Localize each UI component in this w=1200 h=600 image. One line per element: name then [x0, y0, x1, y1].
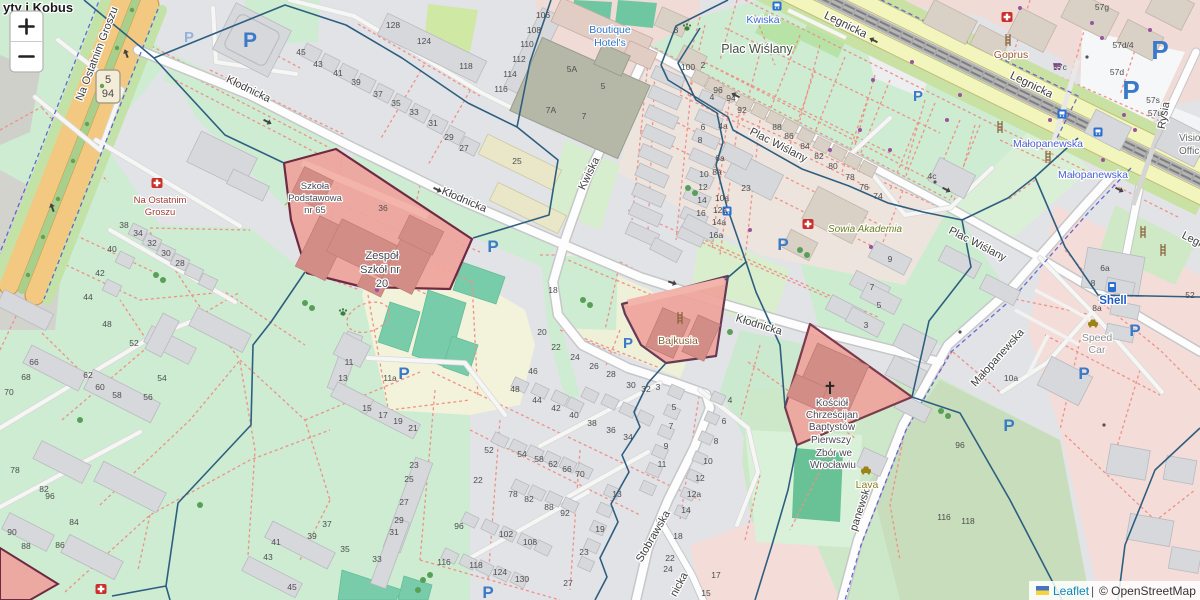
svg-text:Car: Car: [1089, 344, 1106, 356]
svg-text:9: 9: [888, 254, 893, 264]
svg-text:Szkoła: Szkoła: [301, 181, 330, 192]
svg-text:Speed: Speed: [1082, 332, 1113, 344]
svg-text:54: 54: [157, 373, 167, 383]
svg-text:118: 118: [469, 560, 483, 570]
svg-text:14a: 14a: [712, 217, 726, 227]
svg-text:130: 130: [515, 574, 529, 584]
svg-text:8: 8: [698, 135, 703, 145]
svg-text:39: 39: [351, 77, 361, 87]
svg-text:22: 22: [665, 553, 675, 563]
svg-text:48: 48: [510, 384, 520, 394]
svg-text:20: 20: [537, 327, 547, 337]
svg-text:7A: 7A: [546, 105, 557, 115]
svg-text:20: 20: [376, 278, 388, 290]
svg-text:88: 88: [544, 502, 554, 512]
svg-text:32: 32: [147, 238, 157, 248]
svg-text:106: 106: [536, 10, 550, 20]
svg-text:15: 15: [362, 403, 372, 413]
svg-text:Shell: Shell: [1099, 295, 1126, 307]
svg-text:90: 90: [7, 527, 17, 537]
svg-text:10: 10: [699, 169, 709, 179]
svg-text:P: P: [398, 364, 409, 383]
svg-text:62: 62: [83, 370, 93, 380]
svg-text:44: 44: [83, 292, 93, 302]
svg-text:Zespół: Zespół: [365, 250, 399, 262]
svg-text:31: 31: [389, 527, 399, 537]
svg-text:40: 40: [569, 410, 579, 420]
svg-text:114: 114: [503, 69, 517, 79]
svg-text:Sowia Akademia: Sowia Akademia: [828, 224, 903, 235]
svg-text:96: 96: [955, 440, 965, 450]
svg-text:16: 16: [696, 208, 706, 218]
svg-text:48: 48: [102, 319, 112, 329]
svg-text:80: 80: [828, 161, 838, 171]
svg-text:11a: 11a: [383, 373, 397, 383]
svg-text:P: P: [1151, 35, 1168, 65]
svg-text:45: 45: [296, 47, 306, 57]
svg-text:82: 82: [524, 494, 534, 504]
svg-text:42: 42: [95, 268, 105, 278]
svg-text:18: 18: [673, 531, 683, 541]
svg-text:2: 2: [701, 60, 706, 70]
svg-text:62: 62: [548, 459, 558, 469]
svg-text:116: 116: [937, 512, 951, 522]
svg-text:21: 21: [408, 423, 418, 433]
svg-text:6a: 6a: [1100, 263, 1110, 273]
svg-text:116: 116: [494, 84, 508, 94]
svg-text:76: 76: [859, 182, 869, 192]
svg-text:Małopanewska: Małopanewska: [1058, 169, 1128, 181]
svg-text:26: 26: [589, 361, 599, 371]
svg-text:P: P: [184, 29, 194, 46]
svg-text:86: 86: [784, 131, 794, 141]
svg-text:82: 82: [39, 484, 49, 494]
svg-text:42: 42: [551, 403, 561, 413]
svg-text:96: 96: [713, 85, 723, 95]
svg-text:100: 100: [681, 62, 695, 72]
svg-text:38: 38: [587, 418, 597, 428]
svg-text:6: 6: [701, 122, 706, 132]
svg-text:25: 25: [512, 156, 522, 166]
svg-text:8: 8: [714, 436, 719, 446]
svg-text:5: 5: [601, 81, 606, 91]
svg-text:13: 13: [338, 373, 348, 383]
svg-text:86: 86: [55, 540, 65, 550]
svg-text:70: 70: [575, 469, 585, 479]
svg-text:P: P: [1003, 416, 1014, 435]
svg-text:Plac Wiślany: Plac Wiślany: [721, 42, 793, 56]
svg-text:118: 118: [961, 516, 975, 526]
svg-text:66: 66: [562, 464, 572, 474]
svg-text:37: 37: [373, 89, 383, 99]
svg-text:34: 34: [133, 228, 143, 238]
svg-text:39: 39: [307, 531, 317, 541]
svg-text:30: 30: [161, 248, 171, 258]
svg-text:13: 13: [612, 489, 622, 499]
svg-text:18: 18: [548, 285, 558, 295]
svg-text:30: 30: [626, 380, 636, 390]
svg-text:57g: 57g: [1095, 2, 1109, 12]
svg-text:96: 96: [454, 521, 464, 531]
svg-text:92: 92: [737, 105, 747, 115]
svg-text:Chrześcijan: Chrześcijan: [806, 410, 858, 421]
svg-text:4: 4: [728, 395, 733, 405]
svg-text:|: |: [1091, 584, 1094, 598]
svg-text:78: 78: [10, 465, 20, 475]
svg-text:36: 36: [378, 203, 388, 213]
svg-text:57u: 57u: [1148, 108, 1162, 118]
svg-text:35: 35: [340, 544, 350, 554]
svg-text:4c: 4c: [928, 171, 938, 181]
svg-text:25: 25: [404, 474, 414, 484]
svg-text:23: 23: [579, 547, 589, 557]
svg-text:P: P: [487, 237, 498, 256]
svg-text:12a: 12a: [713, 205, 727, 215]
svg-text:52: 52: [1185, 290, 1195, 300]
svg-text:70: 70: [4, 387, 14, 397]
svg-text:41: 41: [271, 537, 281, 547]
svg-text:88: 88: [772, 122, 782, 132]
svg-text:© OpenStreetMap: © OpenStreetMap: [1099, 584, 1196, 598]
svg-text:15: 15: [701, 588, 711, 598]
svg-text:10a: 10a: [1004, 373, 1018, 383]
svg-text:33: 33: [372, 554, 382, 564]
svg-text:6: 6: [722, 416, 727, 426]
svg-text:44: 44: [532, 395, 542, 405]
svg-text:33: 33: [409, 107, 419, 117]
svg-text:12: 12: [698, 182, 708, 192]
svg-text:Zbór we: Zbór we: [816, 448, 853, 459]
svg-text:16a: 16a: [709, 230, 723, 240]
svg-text:P: P: [1122, 75, 1139, 105]
svg-text:✝: ✝: [823, 379, 837, 398]
svg-text:27: 27: [399, 497, 409, 507]
svg-text:28: 28: [606, 369, 616, 379]
svg-text:43: 43: [313, 59, 323, 69]
svg-text:108: 108: [523, 537, 537, 547]
svg-text:7: 7: [669, 421, 674, 431]
svg-text:34: 34: [623, 432, 633, 442]
svg-text:Kwiska: Kwiska: [746, 14, 779, 26]
svg-text:Vision: Vision: [1179, 133, 1200, 144]
svg-text:Szkół nr: Szkół nr: [360, 264, 400, 276]
svg-text:43: 43: [263, 552, 273, 562]
svg-text:23: 23: [409, 460, 419, 470]
svg-text:27: 27: [563, 578, 573, 588]
svg-text:78: 78: [845, 172, 855, 182]
svg-text:24: 24: [663, 564, 673, 574]
svg-text:24: 24: [570, 352, 580, 362]
svg-text:28: 28: [175, 258, 185, 268]
svg-text:84: 84: [800, 141, 810, 151]
svg-text:5: 5: [672, 402, 677, 412]
svg-text:35: 35: [391, 98, 401, 108]
svg-text:58: 58: [112, 390, 122, 400]
svg-text:27: 27: [459, 143, 469, 153]
svg-text:3: 3: [674, 25, 679, 35]
svg-text:52: 52: [129, 338, 139, 348]
svg-text:82: 82: [814, 151, 824, 161]
svg-text:54: 54: [517, 449, 527, 459]
svg-text:14: 14: [681, 505, 691, 515]
svg-text:92: 92: [560, 508, 570, 518]
svg-text:32: 32: [641, 384, 651, 394]
svg-text:8: 8: [1091, 278, 1096, 288]
svg-text:10a: 10a: [715, 193, 729, 203]
svg-text:78: 78: [508, 489, 518, 499]
svg-text:116: 116: [437, 557, 451, 567]
svg-text:56: 56: [143, 392, 153, 402]
svg-text:57d: 57d: [1110, 67, 1124, 77]
svg-text:41: 41: [333, 68, 343, 78]
svg-text:57c: 57c: [1053, 62, 1067, 72]
svg-text:P: P: [482, 583, 493, 600]
svg-text:Hotel's: Hotel's: [594, 37, 626, 49]
svg-text:Lava: Lava: [856, 479, 879, 491]
svg-text:5: 5: [105, 74, 111, 86]
svg-text:17: 17: [378, 410, 388, 420]
svg-text:68: 68: [21, 372, 31, 382]
svg-text:Na Ostatnim: Na Ostatnim: [134, 195, 187, 206]
svg-text:7: 7: [870, 282, 875, 292]
svg-text:Podstawowa: Podstawowa: [288, 193, 343, 204]
svg-text:P: P: [623, 335, 633, 352]
svg-text:74: 74: [873, 191, 883, 201]
svg-text:Bajkusia: Bajkusia: [658, 335, 698, 347]
svg-text:7: 7: [582, 111, 587, 121]
svg-text:Boutique: Boutique: [589, 24, 631, 36]
svg-text:9: 9: [664, 441, 669, 451]
svg-text:Małopanewska: Małopanewska: [1013, 138, 1083, 150]
svg-text:57s: 57s: [1146, 95, 1160, 105]
svg-text:Baptystów: Baptystów: [809, 422, 856, 433]
svg-text:52: 52: [484, 445, 494, 455]
svg-text:P: P: [777, 235, 788, 254]
svg-text:Groszu: Groszu: [145, 207, 176, 218]
svg-text:P: P: [1078, 364, 1089, 383]
svg-text:31: 31: [428, 118, 438, 128]
svg-text:84: 84: [69, 517, 79, 527]
svg-text:88: 88: [21, 541, 31, 551]
svg-text:11: 11: [345, 357, 354, 367]
svg-text:3: 3: [656, 382, 661, 392]
svg-text:12: 12: [695, 473, 705, 483]
svg-text:5: 5: [877, 300, 882, 310]
svg-text:8a: 8a: [712, 167, 722, 177]
svg-text:4: 4: [710, 92, 715, 102]
svg-text:57d/4: 57d/4: [1112, 40, 1134, 50]
svg-text:3: 3: [864, 320, 869, 330]
svg-text:P: P: [913, 88, 923, 105]
svg-text:40: 40: [107, 244, 117, 254]
svg-text:102: 102: [499, 529, 513, 539]
svg-text:12a: 12a: [687, 489, 701, 499]
svg-text:10: 10: [703, 456, 713, 466]
svg-text:36: 36: [606, 425, 616, 435]
svg-text:58: 58: [534, 454, 544, 464]
svg-text:29: 29: [444, 132, 454, 142]
svg-text:11: 11: [658, 459, 667, 469]
svg-text:29: 29: [394, 515, 404, 525]
svg-text:Kościół: Kościół: [816, 398, 849, 409]
svg-text:118: 118: [459, 61, 473, 71]
svg-text:112: 112: [512, 54, 526, 64]
svg-text:4a: 4a: [718, 121, 728, 131]
svg-text:14: 14: [697, 195, 707, 205]
svg-text:37: 37: [322, 519, 332, 529]
svg-text:19: 19: [393, 416, 403, 426]
svg-text:124: 124: [417, 36, 431, 46]
svg-text:108: 108: [527, 25, 541, 35]
svg-text:66: 66: [29, 357, 39, 367]
svg-text:22: 22: [551, 342, 561, 352]
svg-text:Goprus: Goprus: [994, 49, 1028, 61]
svg-text:6a: 6a: [715, 153, 725, 163]
svg-text:22: 22: [473, 475, 483, 485]
svg-text:P: P: [1129, 321, 1140, 340]
svg-text:94: 94: [102, 88, 114, 100]
svg-text:45: 45: [287, 582, 297, 592]
svg-text:94: 94: [726, 93, 736, 103]
svg-text:P: P: [243, 29, 257, 52]
svg-text:19: 19: [595, 524, 605, 534]
svg-text:46: 46: [528, 366, 538, 376]
svg-text:Leaflet: Leaflet: [1053, 584, 1090, 598]
svg-text:124: 124: [493, 567, 507, 577]
svg-text:128: 128: [386, 20, 400, 30]
svg-text:38: 38: [119, 220, 129, 230]
svg-text:110: 110: [520, 39, 534, 49]
svg-text:60: 60: [95, 382, 105, 392]
svg-text:23: 23: [741, 183, 751, 193]
svg-text:Office: Office: [1179, 146, 1200, 157]
svg-text:5A: 5A: [567, 64, 578, 74]
svg-text:Pierwszy: Pierwszy: [811, 435, 851, 446]
svg-text:8a: 8a: [1092, 303, 1102, 313]
svg-text:Wrocławiu: Wrocławiu: [810, 460, 856, 471]
svg-text:nr 65: nr 65: [304, 205, 326, 216]
svg-text:17: 17: [711, 570, 721, 580]
